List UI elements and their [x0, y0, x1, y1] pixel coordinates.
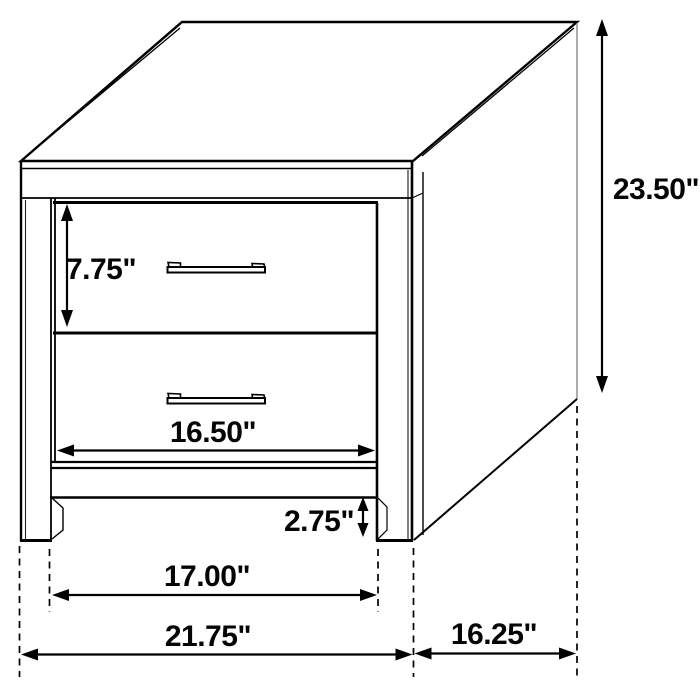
dimension-label-overall-height: 23.50": [613, 173, 699, 206]
dimension-label-side-depth: 16.25": [451, 618, 537, 651]
diagram-canvas: 7.75" 23.50" 16.50" 2.75" 17: [0, 0, 700, 700]
nightstand-dimension-diagram: 7.75" 23.50" 16.50" 2.75" 17: [0, 0, 700, 700]
dimension-label-overall-width: 21.75": [165, 620, 251, 653]
tabletop-band: [21, 169, 413, 199]
drawers: [50, 203, 378, 498]
side-panel: [412, 23, 577, 540]
right-leg-inner-sliver: [378, 498, 387, 539]
dimension-arrow-side-depth: 16.25": [415, 618, 577, 660]
side-bottom-edge: [414, 399, 577, 540]
side-top-band-edge: [412, 193, 423, 198]
dimension-arrow-leg-height: 2.75": [284, 497, 369, 538]
top-surface: [21, 22, 577, 161]
dimension-annotations: 7.75" 23.50" 16.50" 2.75" 17: [20, 19, 700, 677]
dimension-arrow-drawer-width: 16.50": [57, 416, 375, 457]
dimension-label-leg-span: 17.00": [164, 560, 250, 593]
dimension-arrow-leg-span: 17.00": [52, 560, 377, 601]
dimension-label-leg-height: 2.75": [284, 505, 354, 538]
face-frame: [21, 161, 412, 541]
dimension-arrow-drawer-height: 7.75": [61, 204, 136, 327]
top-right-edge-inner: [422, 28, 574, 156]
top-drawer-handle: [168, 263, 266, 273]
dimension-label-drawer-height: 7.75": [66, 253, 136, 286]
bottom-drawer-handle: [168, 394, 266, 404]
top-left-edge-inner: [29, 28, 180, 154]
dimension-arrow-overall-width: 21.75": [21, 620, 413, 661]
dimension-arrow-overall-height: 23.50": [596, 19, 699, 393]
handle-bar: [168, 398, 266, 404]
handle-bar: [168, 267, 266, 273]
dimension-label-drawer-width: 16.50": [170, 416, 256, 449]
left-leg-side-sliver: [52, 498, 63, 539]
